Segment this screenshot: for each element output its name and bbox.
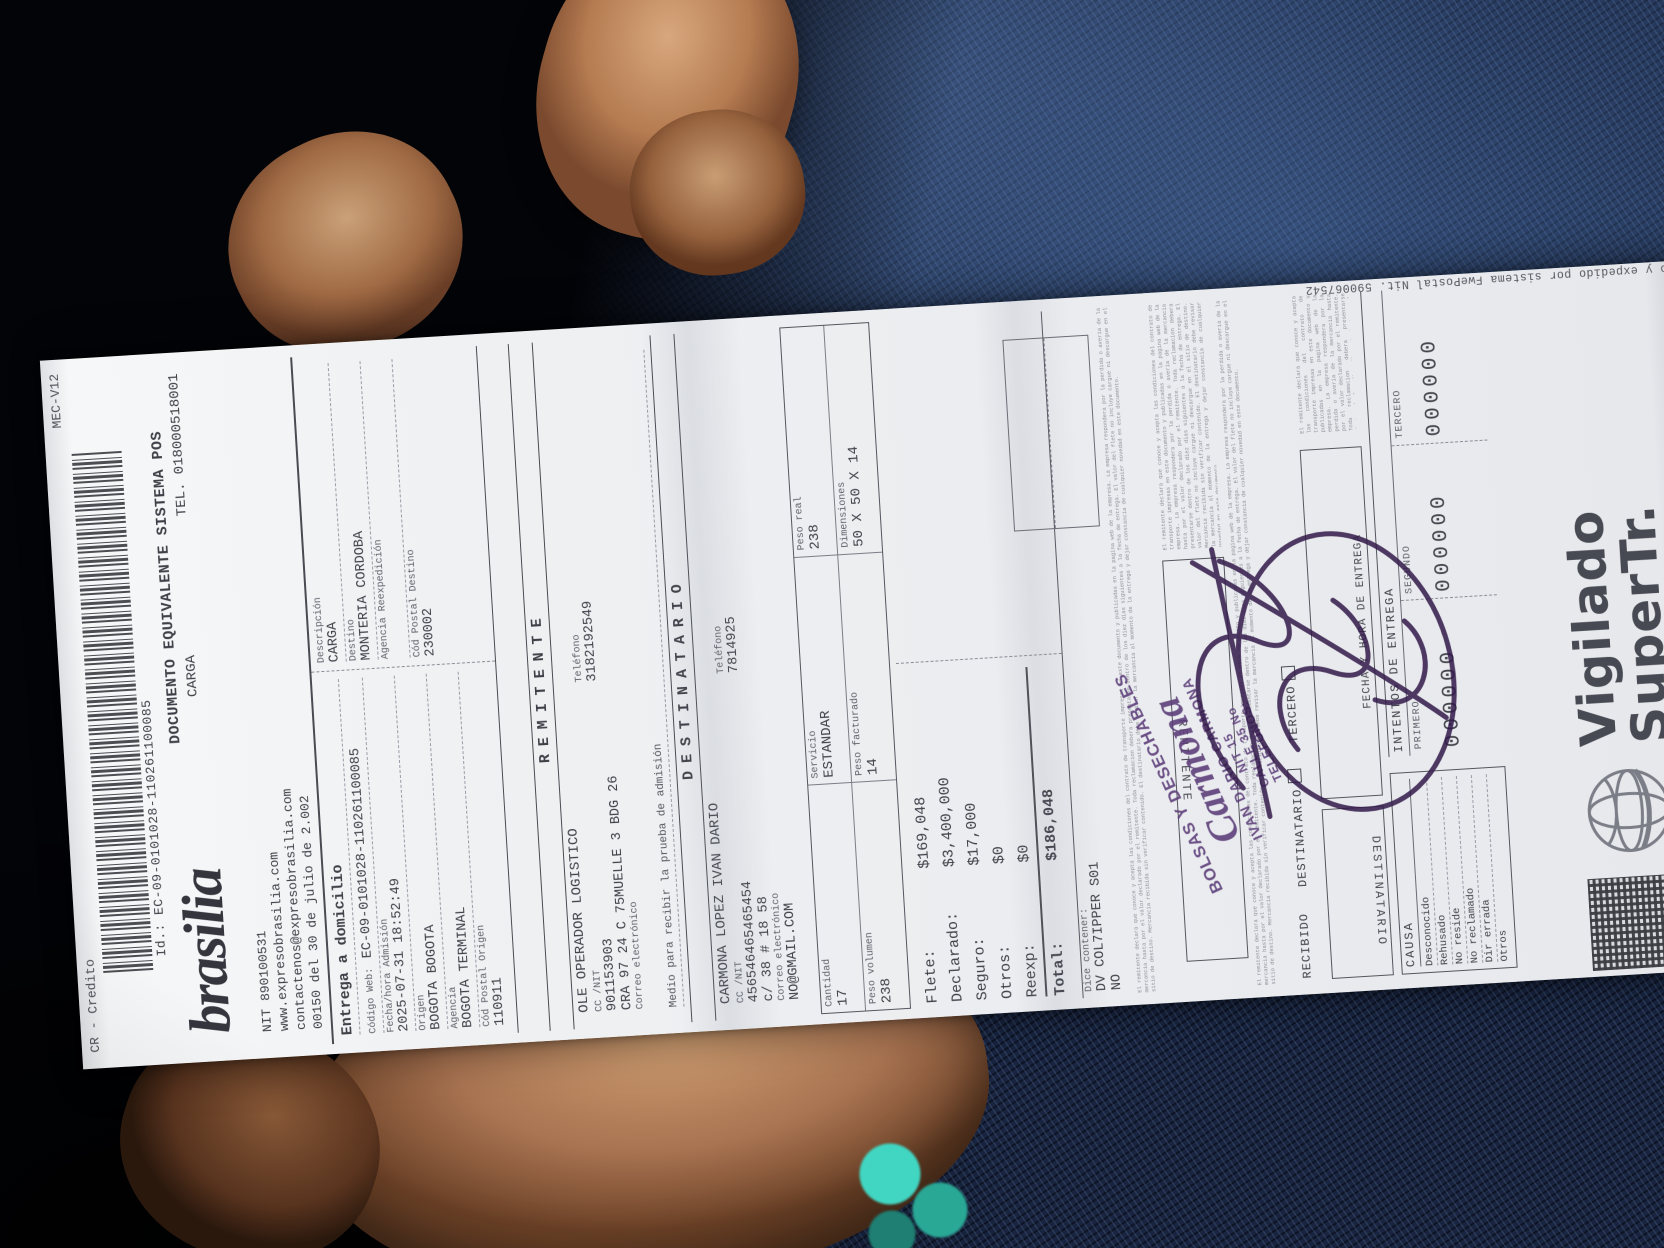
tercero-label: TERCERO — [1386, 296, 1406, 439]
cobros-divider — [896, 653, 1062, 664]
supertransporte-globe-icon — [1576, 758, 1664, 864]
document-subtitle: CARGA — [183, 655, 202, 698]
fine-print-band-4: El remitente declara que conoce y acepta… — [1290, 293, 1356, 434]
cobros-section: Flete:$169,048 Declarado:$3,400,000 Segu… — [875, 311, 1084, 1008]
tercero-value: 000000 — [1415, 293, 1447, 437]
shipment-info-table: Entrega a domicilio Código Web: EC-09-01… — [290, 346, 519, 1044]
shipping-receipt-paper: CR - Credito MEC-V12 Id.: EC-09-0101028-… — [40, 261, 1664, 1070]
seguro-value: $17,000 — [959, 802, 988, 866]
phone-line: TEL. 018000518001 — [166, 373, 191, 517]
fine-print-band-2: El remitente declara que conoce y acepta… — [1147, 301, 1222, 550]
intento-tercero: TERCERO 000000 — [1382, 285, 1487, 445]
pen-signature — [1132, 503, 1501, 854]
blank-box — [1002, 335, 1100, 532]
codigo-web-label: Código Web: — [365, 967, 380, 1034]
form-version-label: MEC-V12 — [47, 373, 65, 428]
reexp-value: $0 — [1011, 844, 1037, 864]
photo-of-receipt-in-hand: CR - Credito MEC-V12 Id.: EC-09-0101028-… — [0, 0, 1664, 1248]
payment-mode-label: CR - Credito — [82, 959, 103, 1053]
company-info-lines: NIT 890100531 www.expresobrasilia.com co… — [245, 787, 328, 1033]
vigilado-supertransporte-text: Vigilado SuperTr. — [1559, 503, 1664, 748]
total-value: $186,048 — [1035, 788, 1067, 862]
otros-value: $0 — [986, 845, 1012, 865]
dice-contener: Dice contener: DV COL7IPPER S01 NO — [1076, 860, 1125, 992]
total-label: Total: — [1039, 860, 1075, 996]
teal-bracelet-beads — [852, 1118, 1002, 1248]
qr-code — [1587, 874, 1664, 971]
brand-logo-brasilia: brasilia — [167, 867, 244, 1035]
vigilado-footer: Vigilado SuperTr. — [1531, 262, 1664, 979]
